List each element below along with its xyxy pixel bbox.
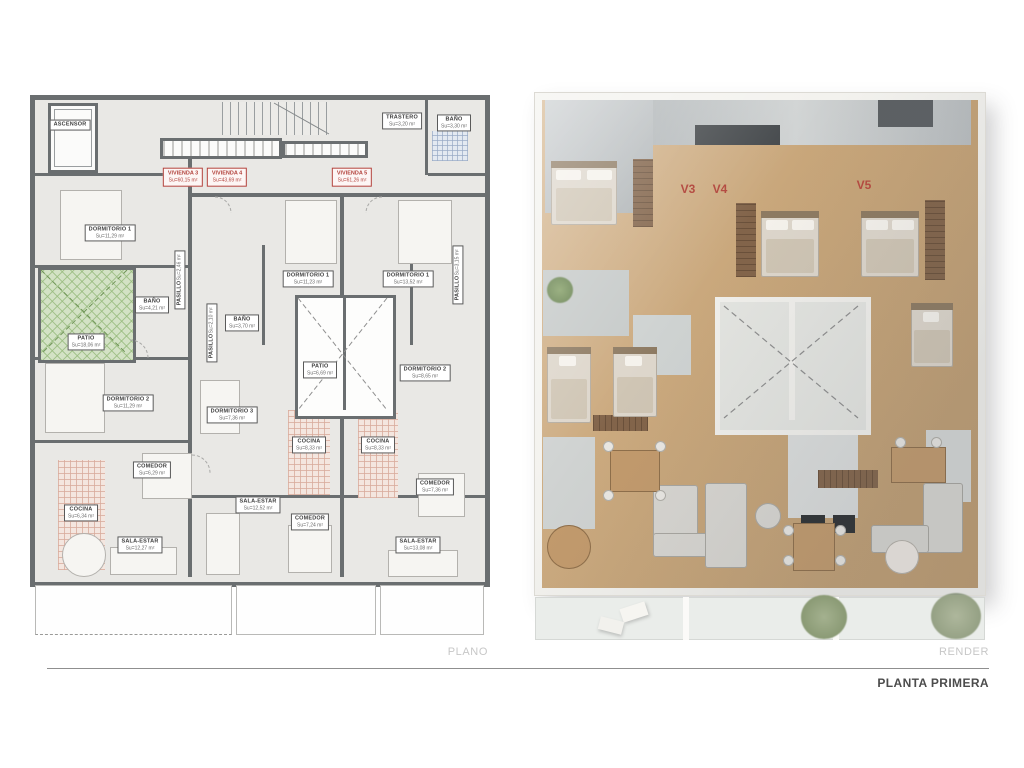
wall [188, 155, 192, 577]
room-name: SALA-ESTAR [239, 498, 276, 505]
room-area: Su=8,33 m² [296, 445, 322, 451]
room-label-cocina-v3: COCINA Su=6,34 m² [64, 504, 98, 521]
footer-divider-line [47, 668, 989, 669]
bed-blanket [551, 379, 588, 419]
wardrobe [633, 159, 653, 227]
room-label-pasillo-v4: PASILLO Su=2,10 m² [207, 304, 218, 363]
room-name: COMEDOR [295, 515, 325, 522]
dining-table-v4 [793, 523, 835, 571]
round-table [62, 533, 106, 577]
room-label-comedor-v3: COMEDOR Su=6,29 m² [133, 461, 171, 478]
room-name: DORMITORIO 2 [107, 396, 150, 403]
room-area: Su=3,30 m² [441, 123, 467, 129]
room-label-ascensor: ASCENSOR [50, 120, 91, 131]
bed [398, 200, 452, 264]
sofa-v4 [705, 483, 747, 568]
dining-table-v3 [610, 450, 660, 492]
dining-table [288, 525, 332, 573]
bed-v4 [761, 211, 819, 277]
chair [603, 441, 614, 452]
bed-headboard [613, 347, 657, 354]
bed-blanket [914, 330, 949, 363]
bed-headboard [761, 211, 819, 218]
bed-headboard [911, 303, 953, 310]
room-label-comedor-v4: COMEDOR Su=7,24 m² [291, 513, 329, 530]
bed-v5 [861, 211, 919, 277]
room-area: Su=7,36 m² [211, 415, 254, 421]
room-area: Su=8,65 m² [404, 373, 447, 379]
room-label-dorm1-v5: DORMITORIO 1 Su=13,52 m² [383, 270, 434, 287]
round-rug [885, 540, 919, 574]
room-label-cocina-v4: COCINA Su=8,33 m² [292, 436, 326, 453]
chair [895, 437, 906, 448]
chair [655, 490, 666, 501]
bed-pillow [766, 220, 788, 230]
sofa [388, 550, 458, 577]
vivienda-name: VIVIENDA 5 [337, 170, 367, 177]
bed-headboard [551, 161, 617, 168]
room-label-bano-v4: BAÑO Su=3,70 m² [225, 314, 259, 331]
terrace [35, 585, 232, 635]
room-area: Su=11,29 m² [89, 233, 132, 239]
room-area: Su=7,36 m² [420, 487, 450, 493]
bed-v3 [551, 161, 617, 225]
room-name: DORMITORIO 1 [287, 272, 330, 279]
render-central-patio [715, 297, 871, 435]
room-name: BAÑO [441, 116, 467, 123]
staircase [222, 102, 330, 135]
sheet-title: PLANTA PRIMERA [760, 676, 989, 690]
chair [783, 525, 794, 536]
bathroom-tile-hatch [432, 131, 468, 161]
bed-pillow [587, 170, 612, 180]
bed [45, 363, 105, 433]
bed [285, 200, 337, 264]
ottoman [755, 503, 781, 529]
room-name: DORMITORIO 1 [387, 272, 430, 279]
room-area: Su=4,21 m² [139, 305, 165, 311]
vivienda-name: VIVIENDA 3 [168, 170, 198, 177]
chair [835, 555, 846, 566]
room-label-dorm2-v3: DORMITORIO 2 Su=11,29 m² [103, 394, 154, 411]
render-stair-void [695, 125, 780, 145]
bed-pillow [792, 220, 814, 230]
room-name: SALA-ESTAR [399, 538, 436, 545]
room-name: SALA-ESTAR [121, 538, 158, 545]
plan-panel: VIVIENDA 3 Su=60,15 m² VIVIENDA 4 Su=43,… [30, 95, 490, 640]
room-name: BAÑO [139, 298, 165, 305]
vivienda-label-v4: VIVIENDA 4 Su=43,69 m² [207, 168, 247, 187]
room-name: PASILLO [177, 281, 184, 306]
render-kitchen-v3 [543, 437, 595, 529]
room-label-cocina-v5: COCINA Su=8,33 m² [361, 436, 395, 453]
room-area: Su=3,20 m² [386, 121, 418, 127]
room-area: Su=6,29 m² [137, 470, 167, 476]
wardrobe [818, 470, 878, 488]
bed-single [911, 303, 953, 367]
vivienda-name: VIVIENDA 4 [212, 170, 242, 177]
vivienda-label-v5: VIVIENDA 5 Su=61,26 m² [332, 168, 372, 187]
sofa [206, 513, 240, 575]
terrace [380, 585, 484, 635]
room-label-sala-v4: SALA-ESTAR Su=12,52 m² [235, 496, 280, 513]
room-label-comedor-v5: COMEDOR Su=7,36 m² [416, 478, 454, 495]
chair [931, 437, 942, 448]
terrace-tree [931, 593, 981, 639]
room-area: Su=12,52 m² [239, 505, 276, 511]
sheet: VIVIENDA 3 Su=60,15 m² VIVIENDA 4 Su=43,… [0, 0, 1024, 768]
render-patio-diagonals [720, 302, 866, 430]
room-area: Su=13,08 m² [399, 545, 436, 551]
marker-v3: V3 [681, 182, 696, 196]
room-name: DORMITORIO 2 [404, 366, 447, 373]
bed-pillow [892, 220, 914, 230]
room-name: PATIO [72, 335, 101, 342]
room-label-dorm2-v5: DORMITORIO 2 Su=8,65 m² [400, 364, 451, 381]
bed-pillow [923, 312, 939, 322]
room-name: PASILLO [209, 334, 216, 359]
vivienda-area: Su=43,69 m² [212, 177, 242, 184]
bed-headboard [861, 211, 919, 218]
wardrobe [736, 203, 756, 277]
room-label-trastero: TRASTERO Su=3,20 m² [382, 112, 422, 129]
room-label-bano-comun: BAÑO Su=3,30 m² [437, 114, 471, 131]
marker-v5: V5 [857, 178, 872, 192]
kitchen-hatch-v5 [358, 410, 398, 498]
chair [835, 525, 846, 536]
room-area: Su=11,29 m² [107, 403, 150, 409]
render-shaft-box [878, 100, 933, 127]
room-label-patio-v3: PATIO Su=18,06 m² [68, 333, 105, 350]
room-name: COMEDOR [137, 463, 167, 470]
wardrobe [593, 415, 648, 431]
room-name: DORMITORIO 1 [89, 226, 132, 233]
bed-single [547, 347, 591, 423]
room-area: Su=18,06 m² [72, 342, 101, 348]
terrace-tree [801, 595, 847, 639]
chair [655, 441, 666, 452]
wall [35, 440, 188, 443]
room-label-patio-central: PATIO Su=6,69 m² [303, 361, 337, 378]
bed-pillow [625, 356, 642, 366]
room-name: ASCENSOR [54, 122, 87, 129]
room-label-pasillo-v3: PASILLO Su=2,46 m² [175, 251, 186, 310]
patio-divider-wall [343, 298, 346, 410]
room-name: COCINA [68, 506, 94, 513]
room-name: TRASTERO [386, 114, 418, 121]
vivienda-area: Su=60,15 m² [168, 177, 198, 184]
room-area: Su=2,46 m² [177, 255, 184, 281]
room-area: Su=13,52 m² [387, 279, 430, 285]
bed-blanket [866, 239, 915, 273]
room-name: PATIO [307, 363, 333, 370]
wall [425, 100, 428, 175]
wall [428, 173, 485, 176]
room-label-dorm1-v3: DORMITORIO 1 Su=11,29 m² [85, 224, 136, 241]
room-area: Su=3,15 m² [455, 250, 462, 276]
bed-pillow [559, 356, 576, 366]
wall [262, 245, 265, 345]
chair [603, 490, 614, 501]
room-name: DORMITORIO 3 [211, 408, 254, 415]
room-label-sala-v3: SALA-ESTAR Su=12,27 m² [117, 536, 162, 553]
wall [188, 193, 485, 197]
room-name: COCINA [365, 438, 391, 445]
room-label-bano-v3: BAÑO Su=4,21 m² [135, 296, 169, 313]
room-label-pasillo-v5: PASILLO Su=3,15 m² [453, 246, 464, 305]
room-area: Su=8,33 m² [365, 445, 391, 451]
terrace [236, 585, 376, 635]
vivienda-label-v3: VIVIENDA 3 Su=60,15 m² [163, 168, 203, 187]
bed-headboard [547, 347, 591, 354]
round-table-v3 [547, 525, 591, 569]
room-label-sala-v5: SALA-ESTAR Su=13,08 m² [395, 536, 440, 553]
room-area: Su=2,10 m² [209, 308, 216, 334]
bed-blanket [617, 377, 654, 413]
room-name: BAÑO [229, 316, 255, 323]
chair [783, 555, 794, 566]
skylight-bar [282, 141, 368, 158]
elevator-shaft [48, 103, 98, 173]
room-name: COMEDOR [420, 480, 450, 487]
bed-pillow [556, 170, 581, 180]
wardrobe [925, 200, 945, 280]
room-label-dorm3-v4: DORMITORIO 3 Su=7,36 m² [207, 406, 258, 423]
room-name: PASILLO [455, 276, 462, 301]
sofa-v5 [923, 483, 963, 553]
room-area: Su=3,70 m² [229, 323, 255, 329]
bed-pillow [866, 220, 888, 230]
central-patio [295, 295, 396, 419]
terrace-divider [683, 597, 689, 640]
room-name: COCINA [296, 438, 322, 445]
room-area: Su=7,24 m² [295, 522, 325, 528]
room-area: Su=6,69 m² [307, 370, 333, 376]
plant [547, 277, 573, 303]
vivienda-area: Su=61,26 m² [337, 177, 367, 184]
room-label-dorm1-v4: DORMITORIO 1 Su=11,23 m² [283, 270, 334, 287]
marker-v4: V4 [713, 182, 728, 196]
bed-blanket [556, 188, 611, 221]
room-area: Su=11,23 m² [287, 279, 330, 285]
plan-caption: PLANO [378, 646, 488, 658]
render-caption: RENDER [879, 646, 989, 658]
room-area: Su=6,34 m² [68, 513, 94, 519]
elevator-cab [54, 109, 92, 167]
bed-single [613, 347, 657, 417]
skylight-bar [160, 138, 282, 159]
room-area: Su=12,27 m² [121, 545, 158, 551]
render-panel: V3 V4 V5 [533, 85, 993, 640]
dining-table-v5 [891, 447, 946, 483]
bed-blanket [766, 239, 815, 273]
